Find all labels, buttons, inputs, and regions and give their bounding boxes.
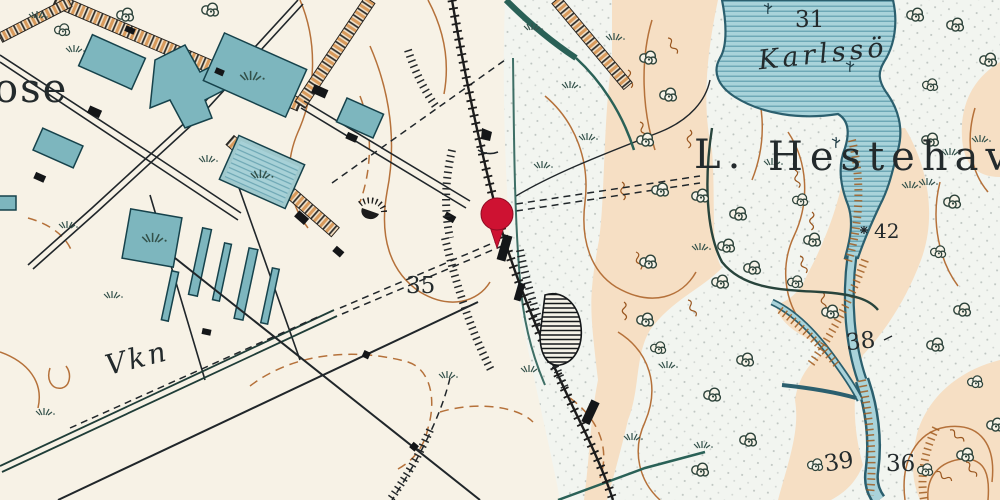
- label-forest-prefix: L.: [694, 132, 747, 178]
- map-svg: ose 31 Karlssö L. Hestehave Vkn 35 38 39…: [0, 0, 1000, 500]
- label-spot-39: 39: [822, 447, 855, 478]
- label-spot-36: 36: [886, 451, 915, 477]
- historical-map-canvas[interactable]: ose 31 Karlssö L. Hestehave Vkn 35 38 39…: [0, 0, 1000, 500]
- label-spot-42: 42: [874, 219, 899, 243]
- label-forest-hestehave: Hestehave: [768, 134, 1000, 180]
- label-spot-38: 38: [845, 327, 877, 356]
- label-spot-35: 35: [406, 273, 435, 299]
- label-town-partial: ose: [0, 66, 68, 112]
- label-spot-31: 31: [795, 7, 824, 33]
